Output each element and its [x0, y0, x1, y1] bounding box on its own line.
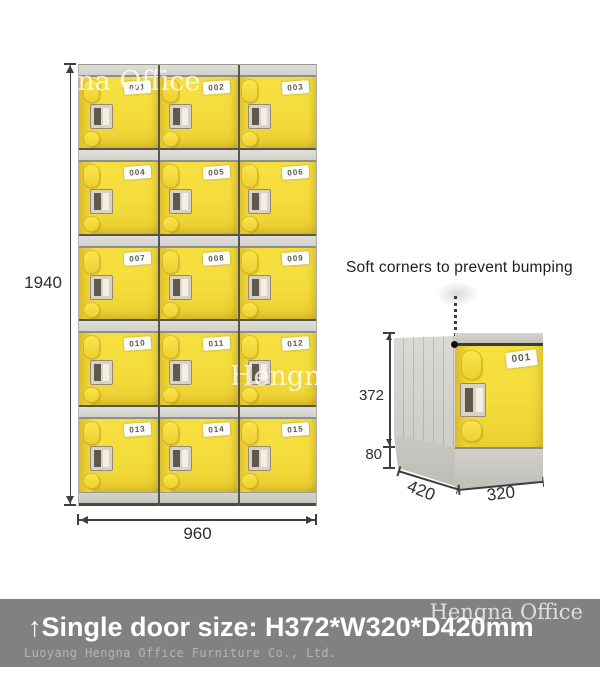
door-number-plate: 003 — [282, 80, 310, 95]
dimension-tick — [64, 504, 76, 506]
locker-cell: 009 — [237, 236, 316, 319]
door-lock — [169, 275, 192, 300]
locker-cell: 011 — [158, 321, 237, 404]
locker-door: 005 — [158, 162, 237, 233]
locker-door: 003 — [237, 77, 316, 148]
locker-door: 008 — [158, 248, 237, 319]
cabinet-width-dimension-line — [78, 519, 316, 521]
locker-door: 011 — [158, 333, 237, 404]
single-locker: 001 — [393, 333, 543, 489]
locker-cell: 003 — [237, 65, 316, 148]
locker-cell: 013 — [79, 407, 158, 492]
door-lock — [169, 360, 192, 385]
door-number-plate: 001 — [505, 349, 538, 369]
door-hinge-ridge — [241, 164, 258, 188]
cabinet-width-label: 960 — [78, 524, 317, 544]
lock-keyhole — [103, 108, 109, 125]
locker-cell: 004 — [79, 150, 158, 233]
locker-frame-strip — [79, 150, 158, 162]
door-lock — [90, 275, 113, 300]
locker-frame-strip — [158, 407, 237, 419]
lock-slot — [252, 193, 259, 210]
locker-cell: 007 — [79, 236, 158, 319]
lock-keyhole — [261, 364, 267, 381]
locker-cell: 006 — [237, 150, 316, 233]
dimension-arrow — [386, 439, 392, 445]
cabinet-row: 013014015 — [79, 407, 316, 492]
single-locker-front: 001 — [455, 333, 543, 488]
lock-keyhole — [182, 193, 188, 210]
door-hinge-ridge — [162, 302, 179, 318]
door-number-plate: 010 — [124, 336, 152, 351]
dimension-arrow — [306, 516, 314, 524]
locker-door: 012 — [237, 333, 316, 404]
door-hinge-ridge — [162, 473, 179, 489]
soft-corner-dot — [451, 341, 458, 348]
locker-frame-strip — [79, 65, 158, 77]
door-number-plate: 008 — [203, 251, 231, 266]
lock-slot — [252, 364, 259, 381]
lock-keyhole — [182, 108, 188, 125]
lock-slot — [173, 364, 180, 381]
dimension-arrow — [66, 496, 74, 504]
door-hinge-ridge — [83, 421, 100, 445]
locker-door: 002 — [158, 77, 237, 148]
door-hinge-ridge — [83, 250, 100, 274]
door-hinge-ridge — [83, 79, 100, 103]
cabinet-column-divider — [238, 65, 240, 506]
cabinet-row: 001002003 — [79, 65, 316, 150]
door-hinge-ridge — [241, 421, 258, 445]
cabinet-row: 010011012 — [79, 321, 316, 406]
door-number-plate: 013 — [124, 422, 152, 437]
lock-slot — [173, 193, 180, 210]
single-locker-side-panel — [394, 336, 456, 448]
dimension-tick — [383, 446, 395, 448]
locker-door: 010 — [79, 333, 158, 404]
soft-corners-caption: Soft corners to prevent bumping — [346, 259, 573, 277]
lock-keyhole — [182, 364, 188, 381]
door-hinge-ridge — [162, 421, 179, 445]
door-hinge-ridge — [241, 216, 258, 232]
locker-door: 013 — [79, 419, 158, 492]
locker-cell: 001 — [79, 65, 158, 148]
door-number-plate: 004 — [124, 165, 152, 180]
single-locker-top-strip — [455, 333, 543, 346]
locker-frame-strip — [237, 65, 316, 77]
door-number-plate: 012 — [282, 336, 310, 351]
door-lock — [248, 446, 271, 471]
single-width-label: 320 — [479, 482, 523, 507]
door-lock — [90, 446, 113, 471]
lock-keyhole — [103, 450, 109, 467]
door-hinge-ridge — [241, 302, 258, 318]
lock-keyhole — [261, 193, 267, 210]
cabinet-column-divider — [158, 65, 160, 506]
lock-slot — [252, 450, 259, 467]
locker-product-image: 0010020030040050060070080090100110120130… — [0, 0, 600, 686]
locker-cell: 005 — [158, 150, 237, 233]
lock-slot — [173, 279, 180, 296]
lock-slot — [94, 450, 101, 467]
cabinet-door-grid: 0010020030040050060070080090100110120130… — [79, 65, 316, 492]
lock-keyhole — [261, 450, 267, 467]
door-hinge-ridge — [83, 335, 100, 359]
door-hinge-ridge — [162, 387, 179, 403]
door-number-plate: 006 — [282, 165, 310, 180]
locker-cabinet: 0010020030040050060070080090100110120130… — [78, 64, 317, 506]
locker-door: 009 — [237, 248, 316, 319]
door-lock — [248, 360, 271, 385]
door-number-plate: 005 — [203, 165, 231, 180]
cabinet-height-dimension-line — [70, 64, 72, 505]
dimension-tick — [383, 467, 395, 469]
door-lock — [169, 104, 192, 129]
locker-frame-strip — [158, 65, 237, 77]
lock-slot — [465, 388, 473, 412]
door-number-plate: 015 — [282, 422, 310, 437]
door-hinge-ridge — [461, 420, 482, 442]
dimension-arrow — [80, 516, 88, 524]
single-door-height-label: 372 — [356, 387, 384, 404]
door-number-plate: 011 — [203, 336, 231, 351]
door-hinge-ridge — [162, 131, 179, 147]
lock-slot — [252, 279, 259, 296]
lock-slot — [94, 364, 101, 381]
info-banner: Hengna Office ↑Single door size: H372*W3… — [0, 599, 600, 667]
door-hinge-ridge — [241, 335, 258, 359]
single-height-dimension-line — [389, 333, 391, 468]
locker-frame-strip — [237, 321, 316, 333]
locker-door: 014 — [158, 419, 237, 492]
door-hinge-ridge — [83, 216, 100, 232]
lock-keyhole — [261, 108, 267, 125]
locker-door: 015 — [237, 419, 316, 492]
lock-keyhole — [261, 279, 267, 296]
cabinet-height-label: 1940 — [16, 273, 62, 293]
lock-keyhole — [182, 450, 188, 467]
door-lock — [248, 189, 271, 214]
door-hinge-ridge — [241, 79, 258, 103]
single-base-height-label: 80 — [360, 446, 382, 463]
locker-cell: 008 — [158, 236, 237, 319]
lock-keyhole — [182, 279, 188, 296]
locker-cell: 015 — [237, 407, 316, 492]
door-hinge-ridge — [83, 387, 100, 403]
locker-door: 007 — [79, 248, 158, 319]
locker-frame-strip — [158, 150, 237, 162]
lock-keyhole — [103, 364, 109, 381]
door-hinge-ridge — [241, 473, 258, 489]
door-hinge-ridge — [241, 387, 258, 403]
door-number-plate: 001 — [124, 80, 152, 95]
locker-frame-strip — [158, 236, 237, 248]
door-hinge-ridge — [162, 216, 179, 232]
door-hinge-ridge — [83, 473, 100, 489]
locker-frame-strip — [79, 236, 158, 248]
locker-cell: 014 — [158, 407, 237, 492]
door-lock — [169, 189, 192, 214]
lock-slot — [173, 108, 180, 125]
locker-frame-strip — [79, 321, 158, 333]
locker-door: 001 — [79, 77, 158, 148]
door-number-plate: 002 — [203, 80, 231, 95]
dimension-arrow — [386, 334, 392, 340]
door-lock — [90, 104, 113, 129]
door-lock — [248, 275, 271, 300]
dimension-arrow — [66, 65, 74, 73]
door-hinge-ridge — [162, 164, 179, 188]
door-number-plate: 007 — [124, 251, 152, 266]
door-number-plate: 009 — [282, 251, 310, 266]
single-locker-door: 001 — [455, 346, 543, 449]
pointer-smudge — [436, 281, 478, 307]
door-lock — [90, 360, 113, 385]
door-hinge-ridge — [461, 350, 482, 380]
lock-keyhole — [103, 279, 109, 296]
banner-subtitle: Luoyang Hengna Office Furniture Co., Ltd… — [24, 646, 337, 660]
lock-slot — [94, 108, 101, 125]
door-number-plate: 014 — [203, 422, 231, 437]
door-hinge-ridge — [83, 131, 100, 147]
lock-slot — [94, 279, 101, 296]
door-hinge-ridge — [83, 164, 100, 188]
door-hinge-ridge — [241, 250, 258, 274]
door-hinge-ridge — [83, 302, 100, 318]
locker-frame-strip — [79, 407, 158, 419]
locker-cell: 010 — [79, 321, 158, 404]
lock-slot — [94, 193, 101, 210]
door-lock — [169, 446, 192, 471]
door-hinge-ridge — [162, 335, 179, 359]
locker-frame-strip — [237, 150, 316, 162]
cabinet-row: 004005006 — [79, 150, 316, 235]
banner-title: ↑Single door size: H372*W320*D420mm — [28, 612, 534, 643]
locker-frame-strip — [237, 407, 316, 419]
lock-slot — [173, 450, 180, 467]
door-lock — [248, 104, 271, 129]
locker-cell: 002 — [158, 65, 237, 148]
door-lock — [90, 189, 113, 214]
door-hinge-ridge — [162, 250, 179, 274]
cabinet-row: 007008009 — [79, 236, 316, 321]
door-hinge-ridge — [241, 131, 258, 147]
lock-slot — [252, 108, 259, 125]
locker-frame-strip — [237, 236, 316, 248]
locker-cell: 012 — [237, 321, 316, 404]
door-lock — [460, 383, 486, 417]
locker-door: 006 — [237, 162, 316, 233]
cabinet-base — [79, 492, 316, 506]
lock-keyhole — [476, 388, 483, 412]
door-hinge-ridge — [162, 79, 179, 103]
lock-keyhole — [103, 193, 109, 210]
locker-door: 004 — [79, 162, 158, 233]
locker-frame-strip — [158, 321, 237, 333]
